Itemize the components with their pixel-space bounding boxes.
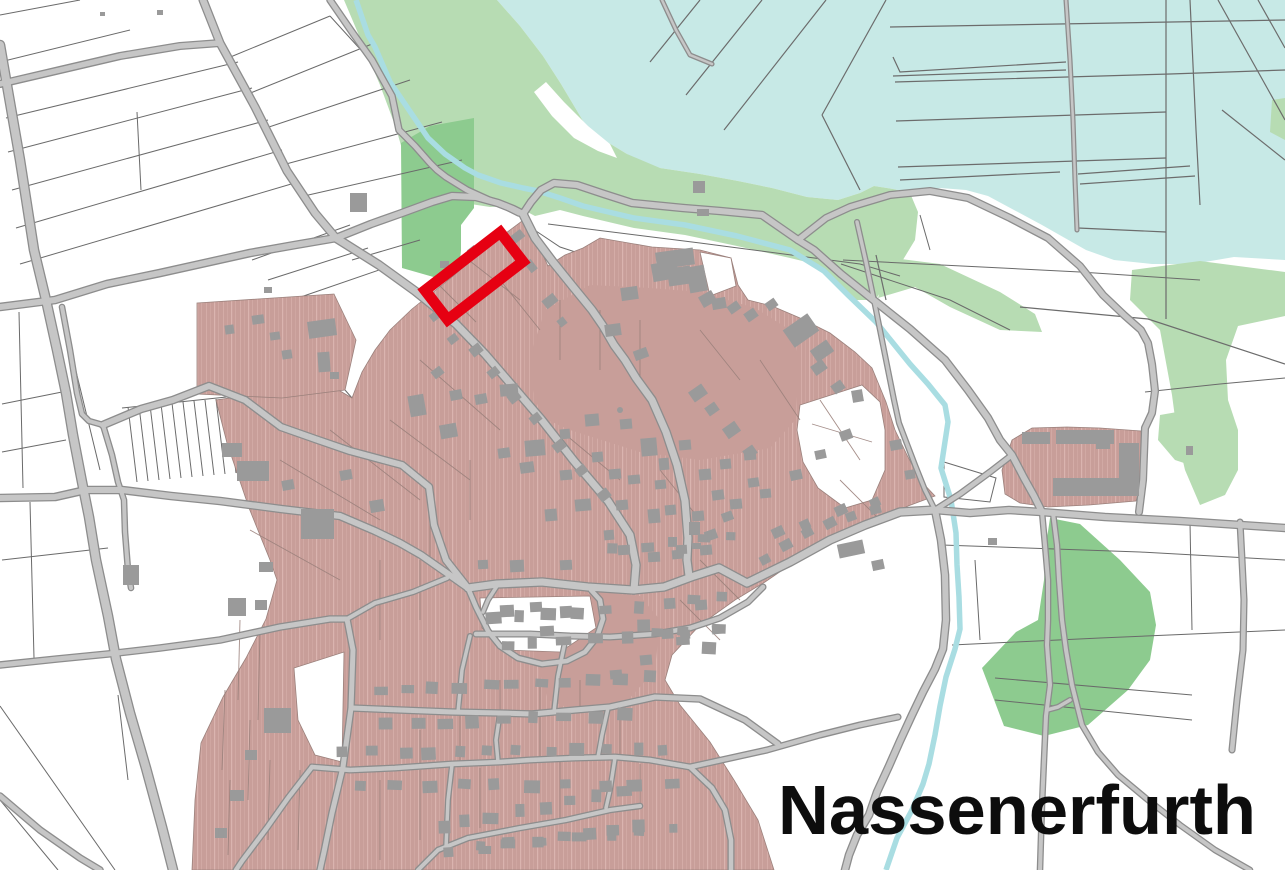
svg-text:Nassenerfurth: Nassenerfurth: [778, 771, 1256, 849]
